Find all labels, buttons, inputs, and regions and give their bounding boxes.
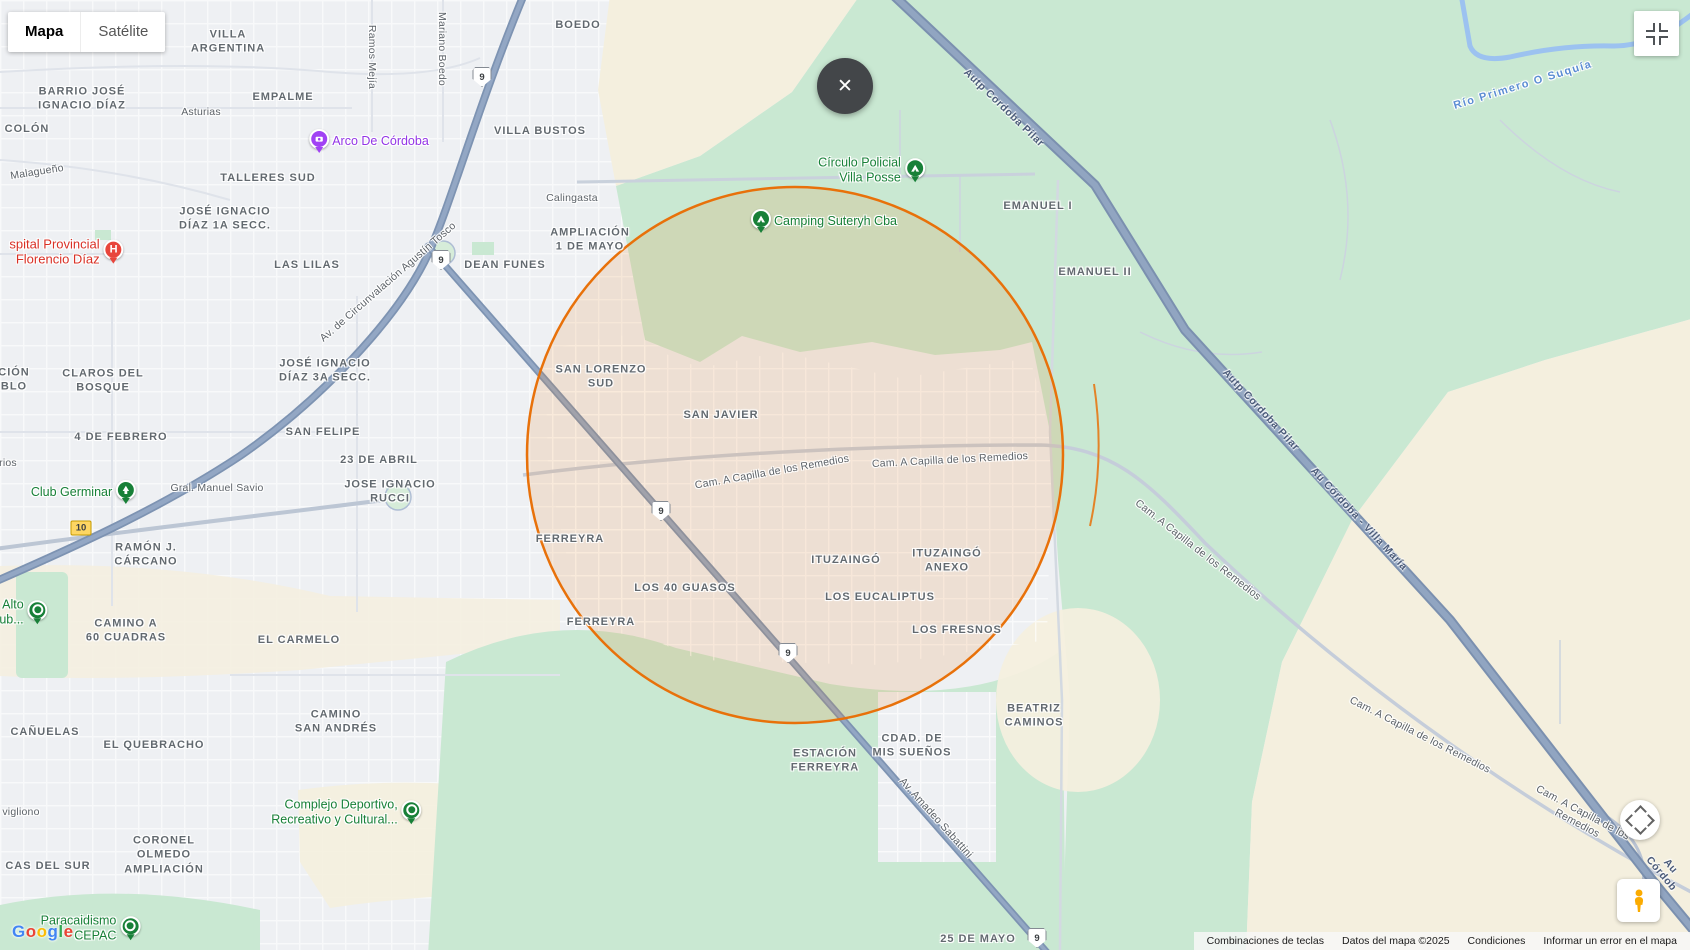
poi-camping-suteryh-cba-label: Camping Suteryh Cba: [774, 214, 897, 229]
hospital-icon: H: [104, 240, 123, 264]
pin-icon: [402, 800, 421, 824]
tent-icon: [751, 209, 770, 233]
poi-club-germinar-label: Club Germinar: [31, 485, 112, 500]
tent-icon: [905, 158, 924, 182]
map-canvas[interactable]: VILLA ARGENTINABOEDOBARRIO JOSÉ IGNACIO …: [0, 0, 1690, 950]
camera-icon: [309, 129, 328, 153]
poi-camping-suteryh-cba[interactable]: Camping Suteryh Cba: [751, 209, 897, 233]
pin-icon: [28, 600, 47, 624]
poi-complejo-deportivo-recreativo-y-cultural[interactable]: Complejo Deportivo, Recreativo y Cultura…: [271, 797, 420, 827]
fullscreen-icon: [1646, 23, 1668, 45]
poi-arco-de-cordoba-label: Arco De Córdoba: [332, 134, 429, 149]
fullscreen-button[interactable]: [1634, 11, 1679, 56]
poi-alto-club[interactable]: Alto ub...: [0, 597, 47, 627]
attribution-bar: Combinaciones de teclas Datos del mapa ©…: [1194, 932, 1690, 950]
terms-link[interactable]: Condiciones: [1459, 935, 1535, 947]
poi-alto-club-label: Alto ub...: [0, 597, 24, 627]
map-base-layers: [0, 0, 1690, 950]
pegman-icon: [1626, 888, 1652, 914]
map-data-text: Datos del mapa ©2025: [1333, 935, 1459, 947]
map-button[interactable]: Mapa: [8, 12, 80, 52]
poi-arco-de-cordoba[interactable]: Arco De Córdoba: [309, 129, 429, 153]
map-type-control: Mapa Satélite: [8, 12, 165, 52]
poi-circulo-policial-villa-posse[interactable]: Círculo Policial Villa Posse: [818, 155, 924, 185]
poi-club-germinar[interactable]: Club Germinar: [31, 480, 135, 504]
satellite-button[interactable]: Satélite: [80, 12, 165, 52]
pin-icon: [120, 916, 139, 940]
keyboard-shortcuts-link[interactable]: Combinaciones de teclas: [1198, 935, 1333, 947]
poi-hospital-provincial-florencio-diaz-label: spital Provincial Florencio Díaz: [9, 237, 99, 268]
close-icon: ✕: [837, 77, 853, 96]
poi-circulo-policial-villa-posse-label: Círculo Policial Villa Posse: [818, 155, 901, 185]
close-button[interactable]: ✕: [817, 58, 873, 114]
pegman-button[interactable]: [1617, 879, 1660, 922]
google-logo[interactable]: Google: [12, 922, 74, 942]
poi-hospital-provincial-florencio-diaz[interactable]: spital Provincial Florencio DíazH: [9, 237, 122, 268]
radius-circle-overlay[interactable]: [527, 187, 1063, 723]
report-error-link[interactable]: Informar un error en el mapa: [1534, 935, 1686, 947]
poi-complejo-deportivo-recreativo-y-cultural-label: Complejo Deportivo, Recreativo y Cultura…: [271, 797, 397, 827]
pan-control[interactable]: [1620, 800, 1660, 840]
tree-icon: [116, 480, 135, 504]
